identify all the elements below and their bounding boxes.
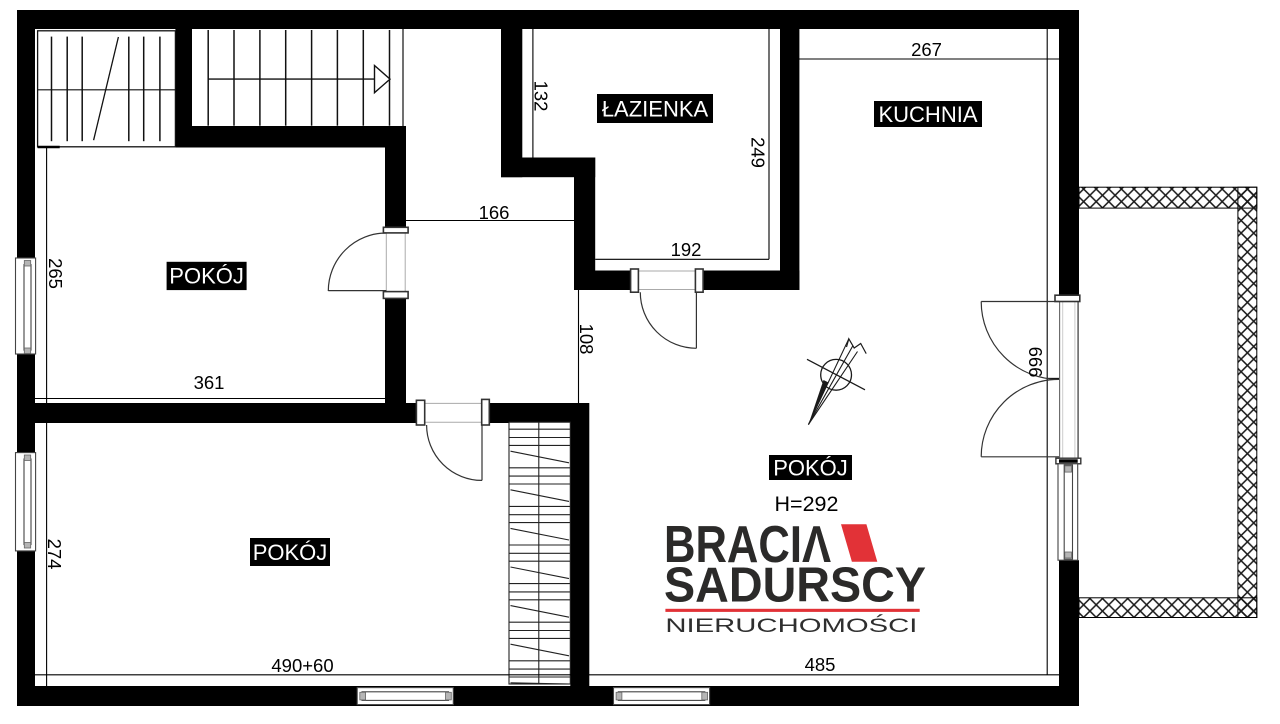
svg-text:ŁAZIENKA: ŁAZIENKA (602, 97, 709, 122)
svg-text:192: 192 (671, 239, 702, 260)
svg-text:108: 108 (576, 324, 597, 355)
svg-text:NIERUCHOMOŚCI: NIERUCHOMOŚCI (665, 613, 917, 637)
svg-text:H=292: H=292 (775, 492, 839, 516)
svg-text:POKÓJ: POKÓJ (253, 540, 328, 565)
svg-text:267: 267 (911, 39, 942, 60)
svg-text:SADURSCY: SADURSCY (664, 559, 926, 613)
svg-text:274: 274 (44, 539, 65, 570)
svg-text:KUCHNIA: KUCHNIA (878, 102, 977, 127)
svg-text:166: 166 (479, 202, 510, 223)
svg-text:666: 666 (1025, 347, 1046, 378)
svg-text:POKÓJ: POKÓJ (773, 456, 848, 481)
svg-text:249: 249 (748, 137, 769, 168)
svg-text:265: 265 (45, 258, 66, 289)
svg-text:485: 485 (805, 654, 836, 675)
svg-text:361: 361 (194, 372, 225, 393)
svg-text:132: 132 (531, 81, 552, 112)
svg-text:POKÓJ: POKÓJ (169, 264, 244, 289)
svg-text:490+60: 490+60 (271, 655, 333, 676)
